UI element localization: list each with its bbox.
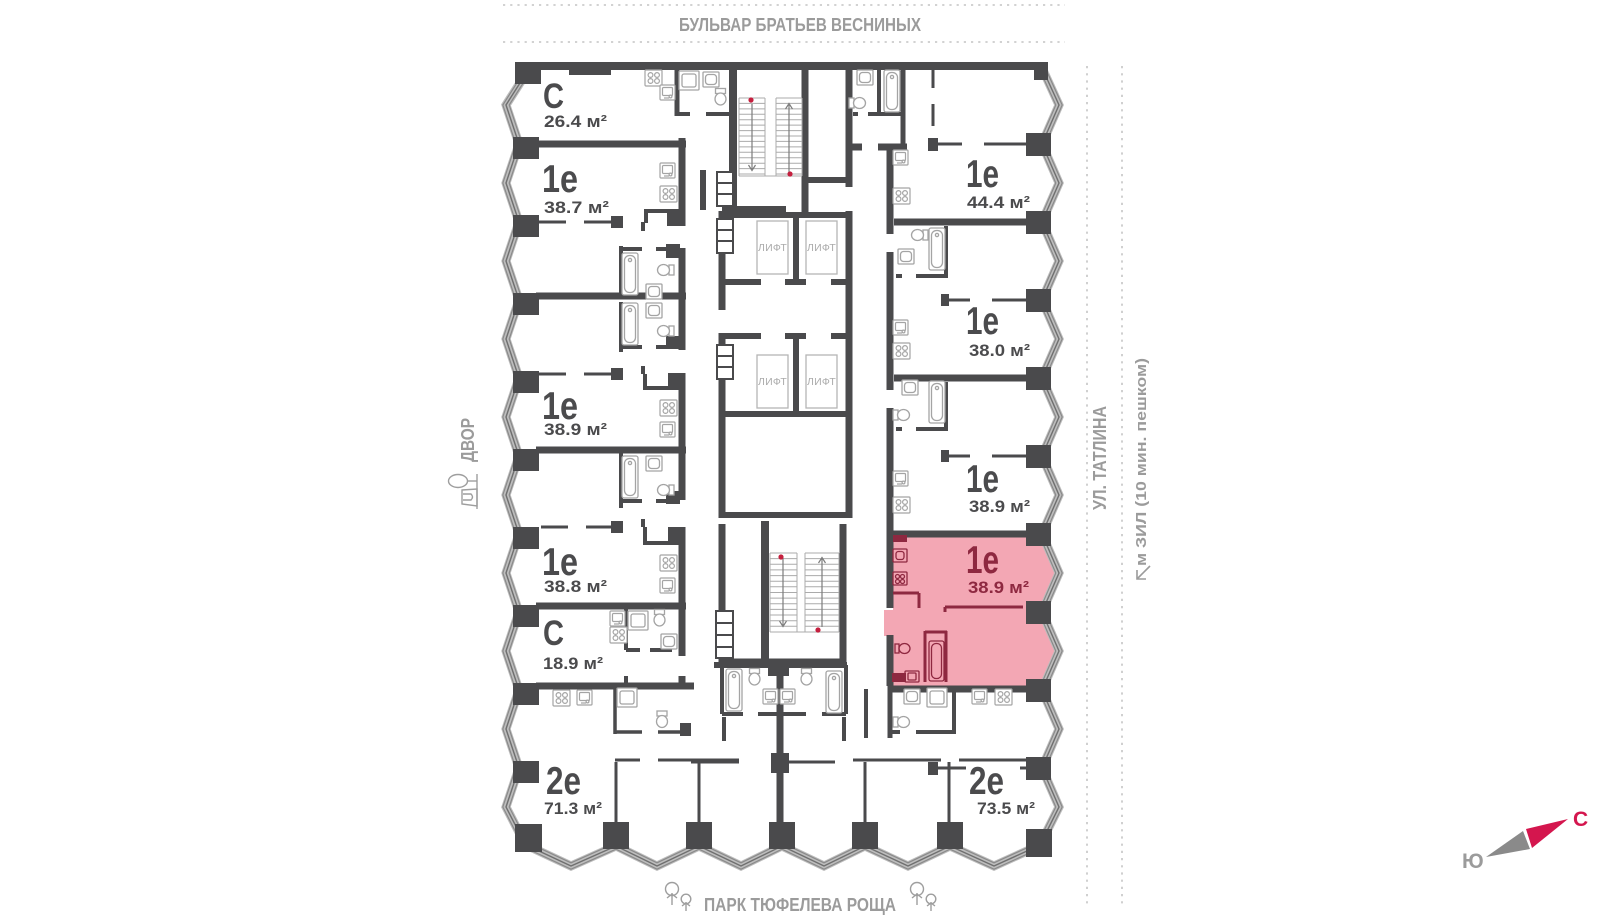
svg-text:1е: 1е [966, 300, 999, 343]
svg-text:С: С [543, 77, 564, 116]
svg-text:1е: 1е [966, 153, 999, 196]
svg-text:ДВОР: ДВОР [458, 418, 478, 462]
svg-text:ЛИФТ: ЛИФТ [807, 376, 836, 388]
svg-text:38.9 м²: 38.9 м² [969, 497, 1030, 516]
svg-text:м ЗИЛ (10 мин. пешком): м ЗИЛ (10 мин. пешком) [1133, 358, 1150, 566]
svg-text:2е: 2е [546, 760, 581, 803]
svg-text:38.0 м²: 38.0 м² [969, 341, 1030, 360]
svg-text:ЛИФТ: ЛИФТ [758, 376, 787, 388]
svg-text:УЛ. ТАТЛИНА: УЛ. ТАТЛИНА [1090, 406, 1110, 510]
svg-text:ПАРК ТЮФЕЛЕВА РОЩА: ПАРК ТЮФЕЛЕВА РОЩА [704, 895, 896, 915]
svg-text:38.8 м²: 38.8 м² [544, 577, 607, 596]
svg-text:1е: 1е [542, 158, 578, 201]
svg-text:38.9 м²: 38.9 м² [968, 578, 1029, 597]
svg-text:26.4 м²: 26.4 м² [544, 112, 607, 131]
svg-text:1е: 1е [966, 539, 999, 582]
svg-text:ЛИФТ: ЛИФТ [758, 242, 787, 254]
svg-text:71.3 м²: 71.3 м² [544, 799, 602, 818]
svg-text:1е: 1е [966, 458, 999, 501]
svg-text:2е: 2е [969, 760, 1004, 803]
svg-text:38.9 м²: 38.9 м² [544, 420, 607, 439]
svg-text:С: С [543, 614, 564, 653]
svg-text:С: С [1573, 808, 1588, 831]
svg-text:ЛИФТ: ЛИФТ [807, 242, 836, 254]
svg-text:БУЛЬВАР БРАТЬЕВ ВЕСНИНЫХ: БУЛЬВАР БРАТЬЕВ ВЕСНИНЫХ [679, 15, 921, 35]
svg-text:18.9 м²: 18.9 м² [543, 654, 603, 673]
svg-text:38.7 м²: 38.7 м² [544, 198, 609, 217]
svg-text:73.5 м²: 73.5 м² [977, 799, 1035, 818]
svg-text:Ю: Ю [1462, 850, 1484, 873]
svg-text:44.4 м²: 44.4 м² [967, 193, 1030, 212]
